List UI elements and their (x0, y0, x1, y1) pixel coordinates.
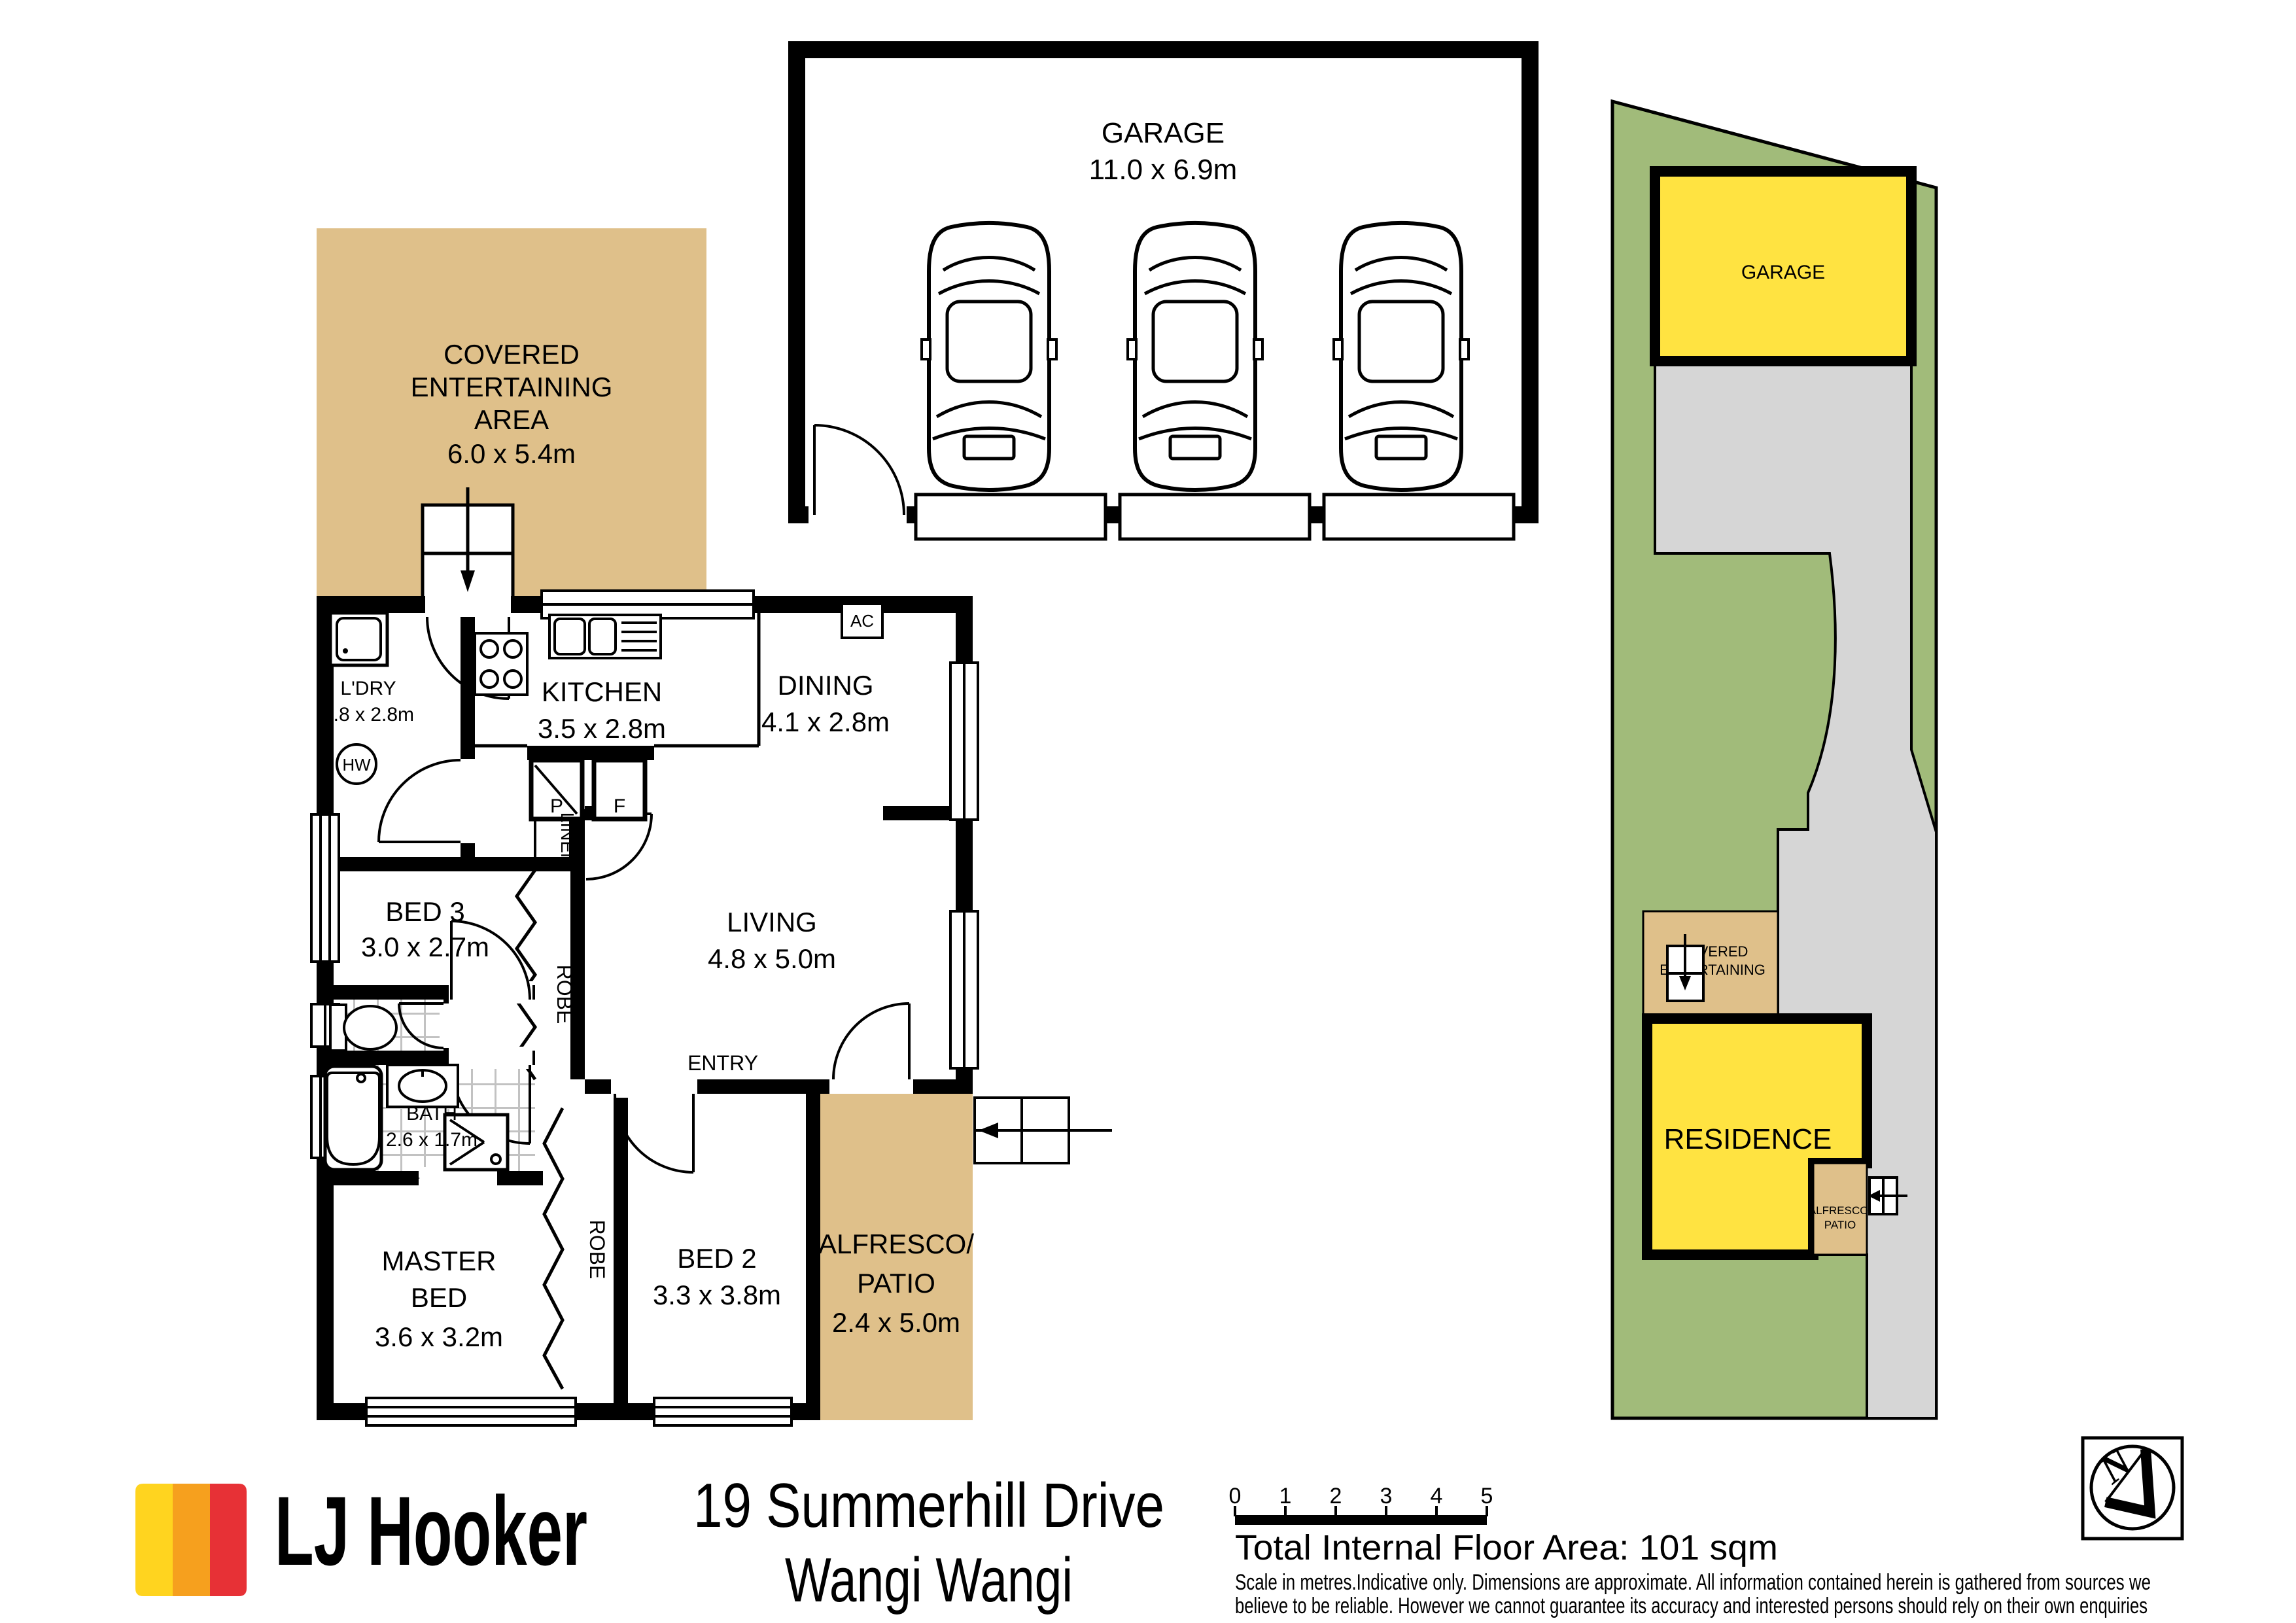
total-area-text: Total Internal Floor Area: 101 sqm (1235, 1528, 1778, 1567)
covered-entertaining-area: COVERED ENTERTAINING AREA 6.0 x 5.4m (317, 228, 706, 602)
scale-tick-2: 2 (1330, 1484, 1342, 1509)
living-label: LIVING (727, 907, 817, 937)
master-label-2: BED (411, 1282, 467, 1313)
bed2-label: BED 2 (677, 1243, 756, 1274)
vanity-basin (387, 1065, 458, 1107)
laundry-tub (330, 613, 387, 665)
scale-tick-5: 5 (1481, 1484, 1493, 1509)
alfresco-label-1: ALFRESCO/ (818, 1229, 974, 1259)
covered-area-dims: 6.0 x 5.4m (447, 438, 576, 469)
master-robe-label: ROBE (585, 1220, 609, 1280)
logo-stripe-red (210, 1484, 247, 1596)
alfresco-steps-icon (975, 1098, 1112, 1163)
site-residence-label: RESIDENCE (1664, 1123, 1832, 1155)
site-plan: GARAGE COVERED ENTERTAINING RESIDENCE AL… (1612, 101, 1936, 1418)
site-alfresco-label-2: PATIO (1824, 1219, 1856, 1231)
logo-stripe-orange (173, 1484, 210, 1596)
garage-roller-door-3 (1324, 495, 1514, 539)
disclaimer-line-2: believe to be reliable. However we canno… (1235, 1594, 2148, 1618)
scale-tick-4: 4 (1431, 1484, 1443, 1509)
covered-steps-icon (423, 487, 513, 602)
kitchen-sink (549, 615, 661, 658)
ac-unit: AC (842, 604, 882, 638)
dining-dims: 4.1 x 2.8m (761, 707, 890, 737)
bed2-dims: 3.3 x 3.8m (653, 1280, 781, 1310)
alfresco-label-2: PATIO (857, 1268, 935, 1299)
scale-tick-3: 3 (1380, 1484, 1393, 1509)
master-dims: 3.6 x 3.2m (375, 1321, 503, 1352)
north-compass-icon: N (2079, 1428, 2182, 1539)
scale-tick-1: 1 (1279, 1484, 1292, 1509)
bed3-dims: 3.0 x 2.7m (361, 932, 489, 962)
garage-label: GARAGE (1102, 117, 1225, 149)
laundry-dims: 1.8 x 2.8m (322, 704, 414, 725)
stove (475, 633, 527, 695)
bed3-label: BED 3 (385, 896, 464, 927)
floorplan-canvas: GARAGE COVERED ENTERTAINING RESIDENCE AL… (0, 0, 2296, 1623)
brand-name: LJ Hooker (275, 1476, 587, 1586)
footer: LJ Hooker 19 Summerhill Drive Wangi Wang… (135, 1428, 2182, 1618)
laundry-label: L'DRY (340, 678, 396, 699)
scale-tick-0: 0 (1229, 1484, 1242, 1509)
garage-floorplan: GARAGE 11.0 x 6.9m (788, 41, 1539, 539)
bed3-robe-label: ROBE (553, 965, 576, 1024)
toilet (330, 1005, 396, 1051)
garage-roller-door-2 (1120, 495, 1310, 539)
scale-bar: 0 1 2 3 4 5 (1229, 1484, 1493, 1525)
site-alfresco-label-1: ALFRESCO/ (1809, 1204, 1872, 1217)
hw-label: HW (342, 755, 371, 775)
address-line-2: Wangi Wangi (785, 1545, 1073, 1615)
fridge-label: F (614, 795, 625, 817)
house-floorplan: P F (311, 591, 1112, 1425)
bathtub (325, 1066, 381, 1170)
garage-door-opening (809, 504, 907, 526)
bath-dims: 2.6 x 1.7m (386, 1129, 478, 1151)
alfresco-dims: 2.4 x 5.0m (832, 1307, 960, 1338)
linen-label: LINEN (557, 812, 578, 866)
covered-label-1: COVERED (444, 339, 580, 370)
ljhooker-logo: LJ Hooker (135, 1476, 587, 1596)
garage-roller-door-1 (916, 495, 1105, 539)
master-label-1: MASTER (381, 1246, 496, 1276)
kitchen-label: KITCHEN (542, 676, 662, 707)
logo-stripe-yellow (135, 1484, 173, 1596)
living-dims: 4.8 x 5.0m (708, 943, 836, 974)
entry-label: ENTRY (687, 1051, 758, 1075)
floorplan-page: GARAGE COVERED ENTERTAINING RESIDENCE AL… (0, 0, 2296, 1623)
kitchen-dims: 3.5 x 2.8m (538, 713, 666, 744)
disclaimer-line-1: Scale in metres.Indicative only. Dimensi… (1235, 1570, 2151, 1595)
bath-label: BATH (406, 1103, 457, 1125)
covered-label-3: AREA (474, 404, 549, 435)
ac-label: AC (850, 611, 874, 631)
address-line-1: 19 Summerhill Drive (693, 1471, 1164, 1541)
garage-dims: 11.0 x 6.9m (1089, 154, 1238, 186)
hot-water-unit: HW (337, 744, 376, 784)
covered-label-2: ENTERTAINING (411, 372, 613, 402)
dining-label: DINING (778, 670, 874, 701)
scale-bar-line (1235, 1515, 1487, 1525)
site-garage-label: GARAGE (1741, 262, 1825, 283)
